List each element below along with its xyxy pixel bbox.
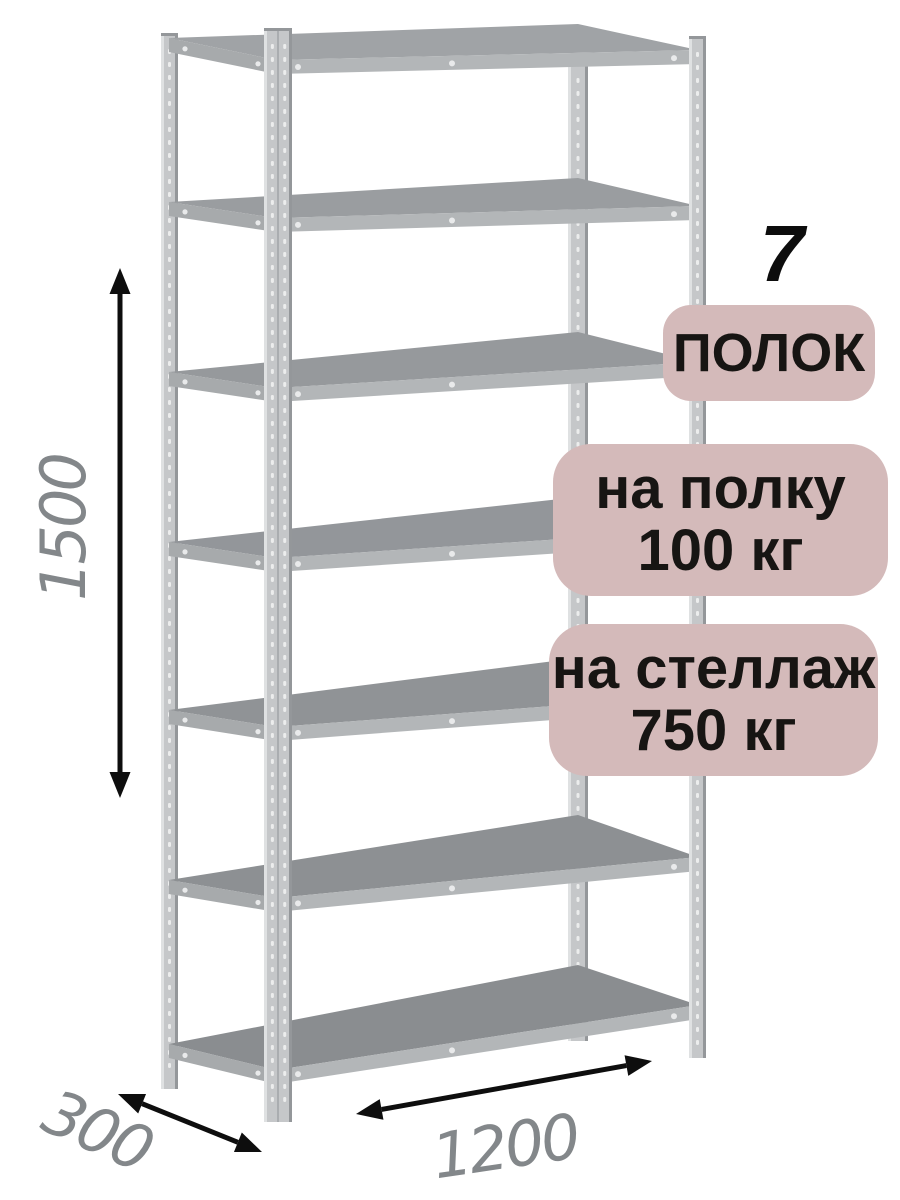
shelf-count-badge: ПОЛОК xyxy=(663,305,875,401)
per-rack-load-line2: 750 кг xyxy=(630,702,796,760)
front-left-post xyxy=(264,28,292,1122)
product-image: 1500 300 1200 7 ПОЛОК на полку 100 кг на… xyxy=(0,0,900,1200)
shelving-rack-illustration xyxy=(0,0,900,1200)
per-shelf-load-line1: на полку xyxy=(595,460,846,518)
shelf-count-number: 7 xyxy=(698,214,866,300)
height-dimension-label: 1500 xyxy=(33,408,95,648)
rear-left-post xyxy=(161,33,178,1089)
per-rack-load-badge: на стеллаж 750 кг xyxy=(549,624,878,776)
rack-shelf-6 xyxy=(169,815,698,912)
rack-shelf-3 xyxy=(169,332,698,402)
height-arrow xyxy=(110,268,131,798)
per-shelf-load-badge: на полку 100 кг xyxy=(553,444,888,596)
rack-shelf-2 xyxy=(169,178,698,232)
per-rack-load-line1: на стеллаж xyxy=(552,640,875,698)
per-shelf-load-line2: 100 кг xyxy=(637,522,803,580)
shelf-count-unit-text: ПОЛОК xyxy=(673,322,865,384)
rack-shelf-1 xyxy=(169,24,698,74)
